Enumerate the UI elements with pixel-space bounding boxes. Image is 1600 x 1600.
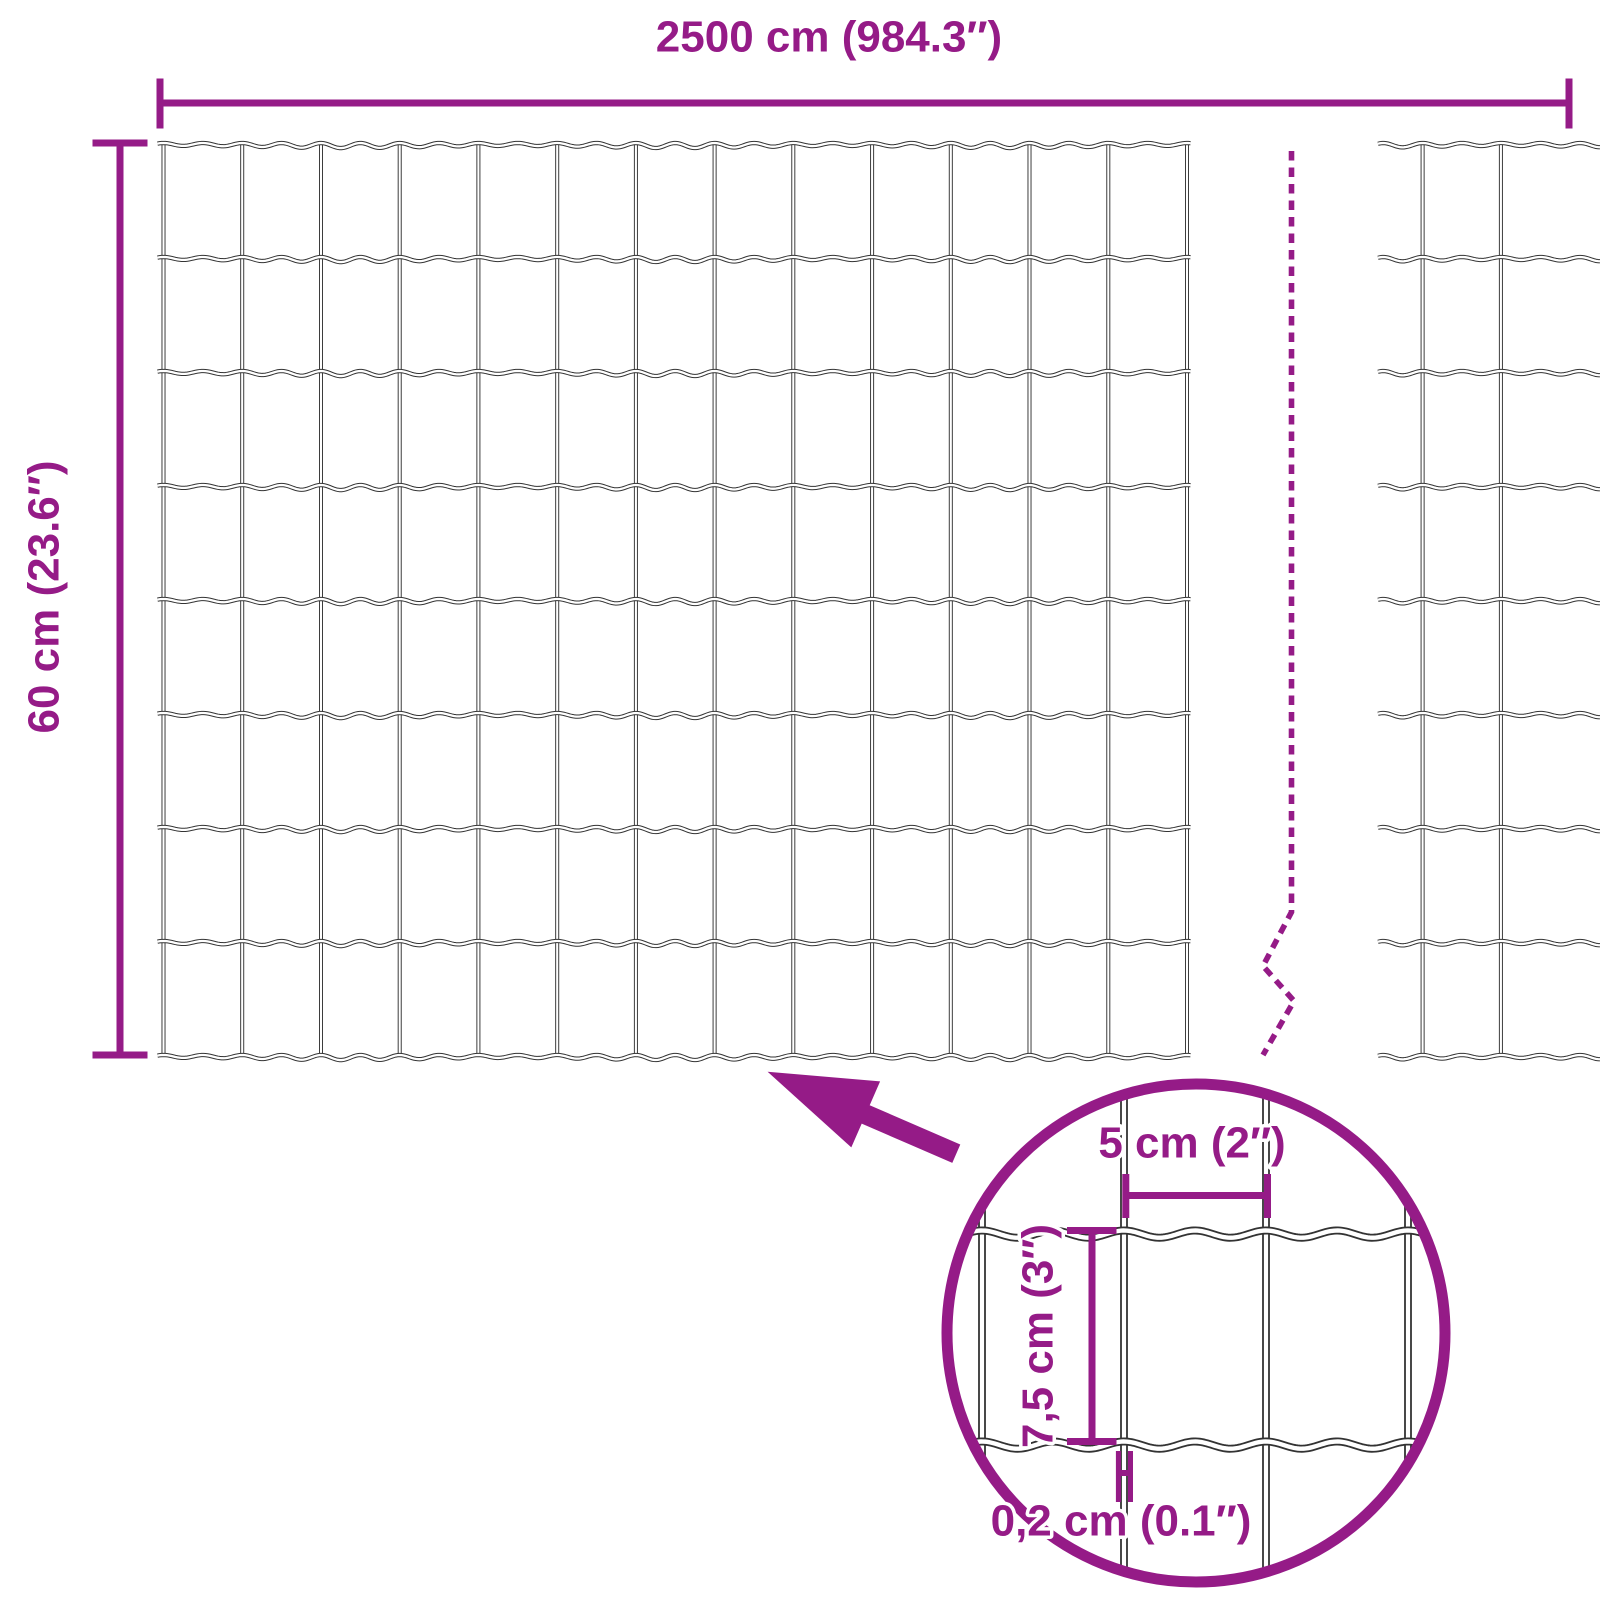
svg-text:5 cm (2″): 5 cm (2″) — [1098, 1119, 1285, 1168]
svg-text:2500 cm (984.3″): 2500 cm (984.3″) — [656, 13, 1002, 62]
svg-text:0,2 cm (0.1″): 0,2 cm (0.1″) — [991, 1497, 1252, 1546]
svg-text:60 cm (23.6″): 60 cm (23.6″) — [20, 460, 69, 733]
svg-text:7,5 cm (3″): 7,5 cm (3″) — [1014, 1224, 1063, 1448]
